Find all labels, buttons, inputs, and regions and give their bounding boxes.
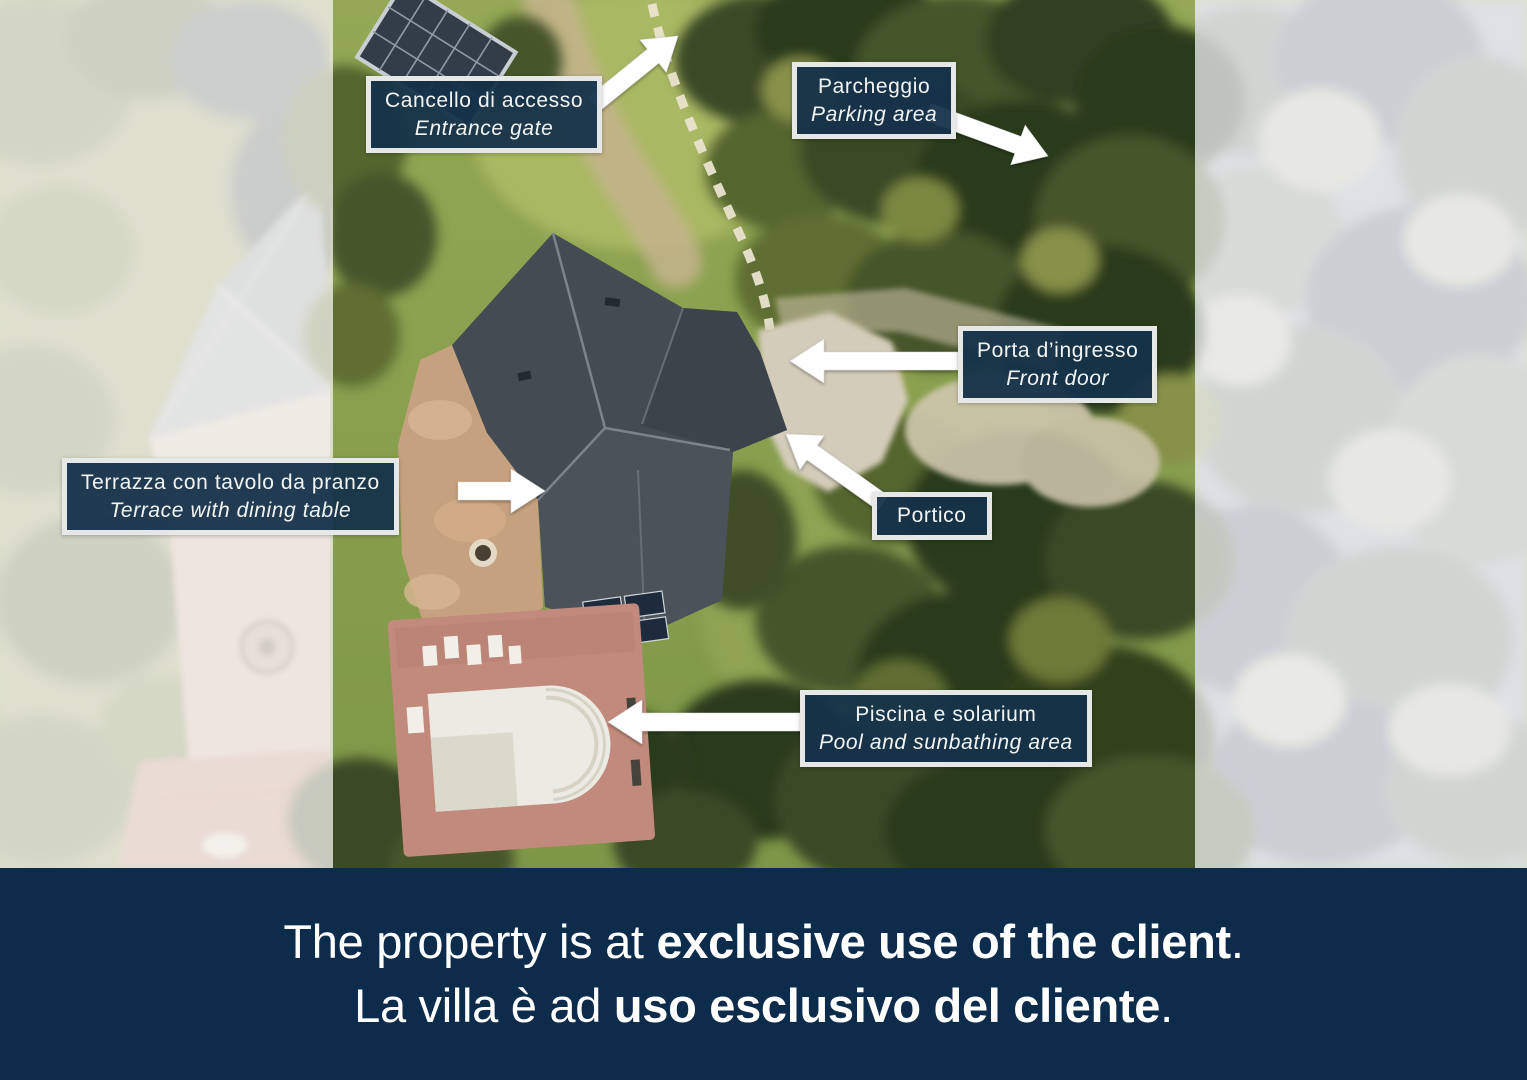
label-terrace-english: Terrace with dining table [81, 497, 380, 525]
right-fade-overlay [1195, 0, 1527, 868]
label-front-door-italian: Porta d’ingresso [977, 337, 1138, 365]
exclusivity-banner: The property is at exclusive use of the … [0, 868, 1527, 1080]
label-entrance-gate-english: Entrance gate [385, 115, 583, 143]
label-terrace-italian: Terrazza con tavolo da pranzo [81, 469, 380, 497]
label-entrance-gate: Cancello di accesso Entrance gate [366, 76, 602, 153]
banner-line2-suffix: . [1160, 979, 1173, 1032]
banner-line1-prefix: The property is at [283, 915, 656, 968]
label-front-door: Porta d’ingresso Front door [958, 326, 1157, 403]
label-front-door-english: Front door [977, 365, 1138, 393]
label-pool: Piscina e solarium Pool and sunbathing a… [800, 690, 1092, 767]
annotated-property-aerial-view: Cancello di accesso Entrance gate Parche… [0, 0, 1527, 1080]
banner-line1-bold: exclusive use of the client [656, 915, 1230, 968]
label-parking: Parcheggio Parking area [792, 62, 956, 139]
label-parking-english: Parking area [811, 101, 937, 129]
left-fade-overlay [0, 0, 333, 868]
label-entrance-gate-italian: Cancello di accesso [385, 87, 583, 115]
banner-line2-prefix: La villa è ad [354, 979, 614, 1032]
banner-line-english: The property is at exclusive use of the … [283, 915, 1243, 969]
aerial-photo [0, 0, 1527, 868]
banner-line2-bold: uso esclusivo del cliente [614, 979, 1160, 1032]
label-terrace: Terrazza con tavolo da pranzo Terrace wi… [62, 458, 399, 535]
label-portico: Portico [872, 492, 992, 540]
label-portico-italian: Portico [897, 502, 967, 530]
banner-line1-suffix: . [1231, 915, 1244, 968]
label-pool-italian: Piscina e solarium [819, 701, 1073, 729]
pool-deck [387, 603, 655, 857]
label-pool-english: Pool and sunbathing area [819, 729, 1073, 757]
label-parking-italian: Parcheggio [811, 73, 937, 101]
banner-line-italian: La villa è ad uso esclusivo del cliente. [354, 979, 1173, 1033]
